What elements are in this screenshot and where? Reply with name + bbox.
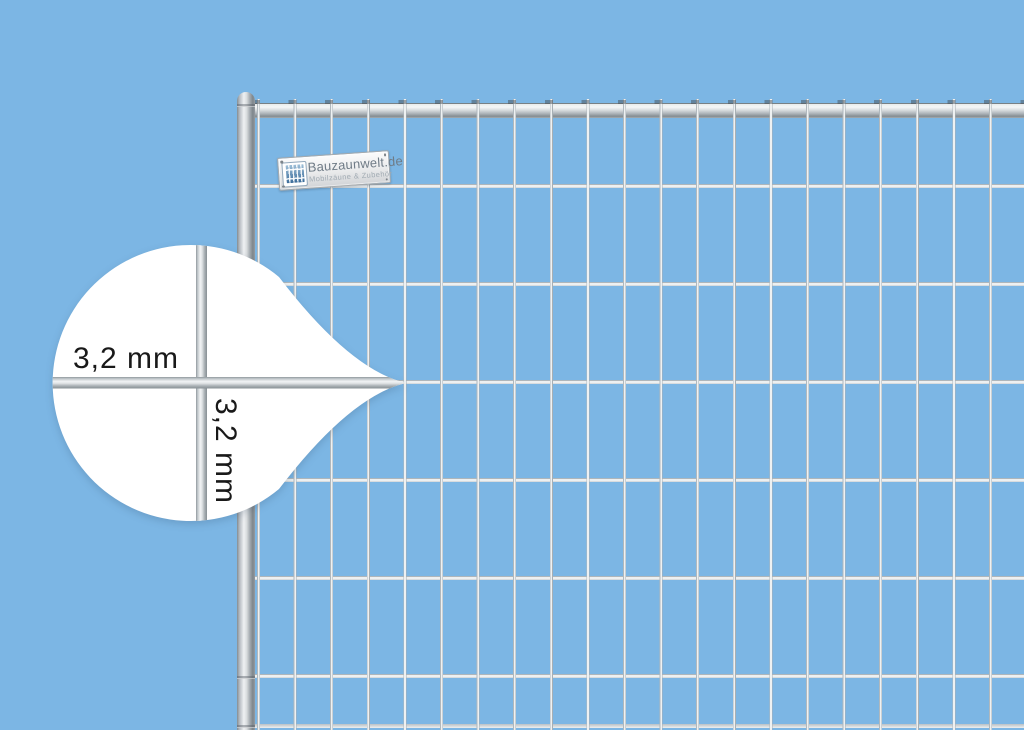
magnified-horizontal-wire [50, 377, 407, 389]
vertical-wire-measurement-label: 3,2 mm [210, 398, 240, 504]
product-image-mobile-fence: Bauzaunwelt.de Mobilzäune & Zubehör [0, 0, 1024, 730]
horizontal-wire-measurement-label: 3,2 mm [73, 344, 179, 374]
